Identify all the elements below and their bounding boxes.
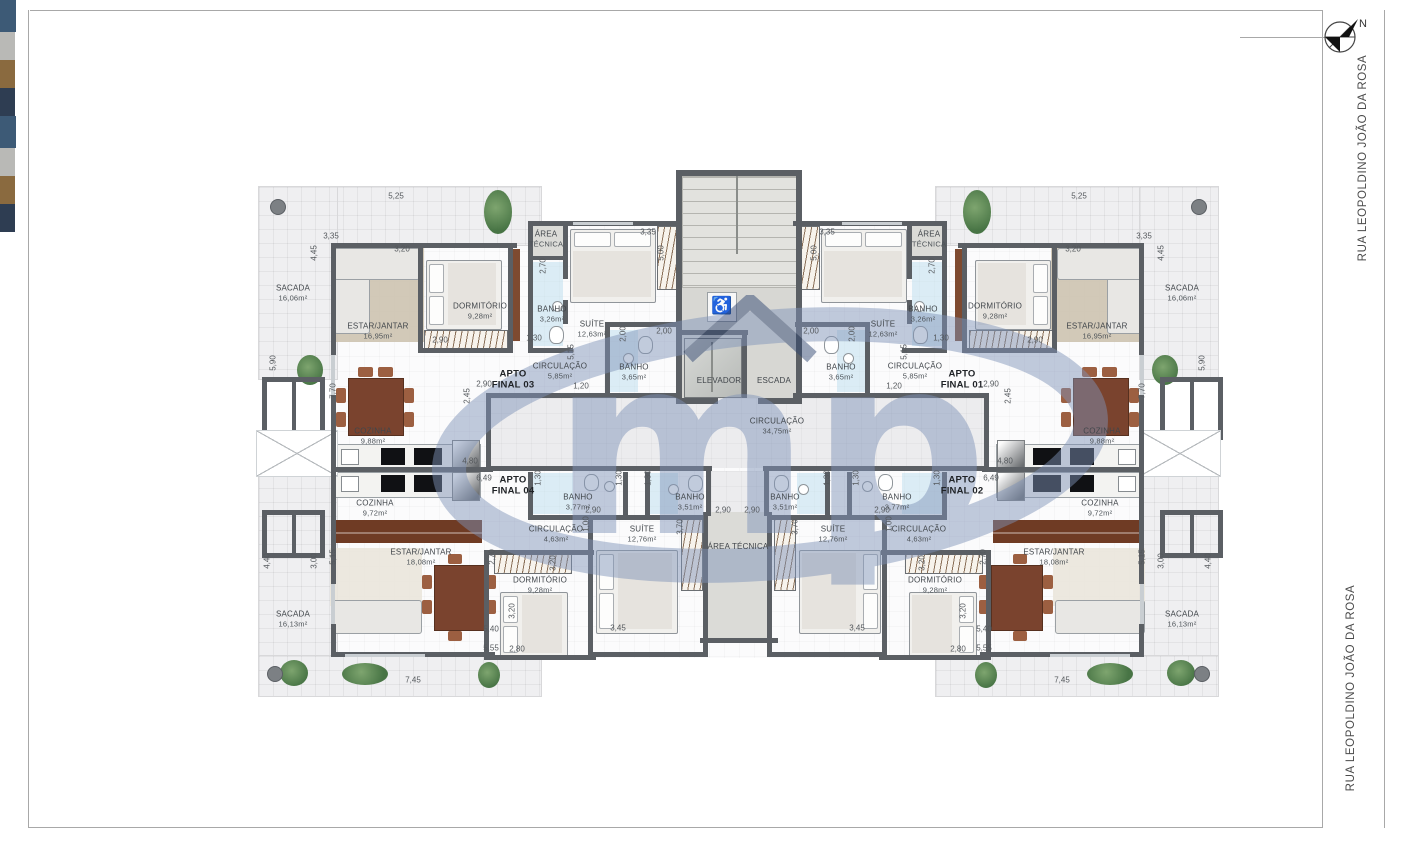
- dimension-label: 5,25: [388, 192, 404, 201]
- floor-plan-labels: SACADA16,06m²SACADA16,06m²ESTAR/JANTAR16…: [0, 0, 1408, 844]
- dimension-label: 6,49: [476, 474, 492, 483]
- core-label-name: CIRCULAÇÃO: [750, 417, 804, 427]
- dimension-label: 1,30: [933, 334, 949, 343]
- room-label-area: 5,85m²: [888, 371, 942, 380]
- room-label: ESTAR/JANTAR18,08m²: [390, 548, 451, 567]
- dimension-label: 3,20: [508, 603, 517, 619]
- room-label-area: 4,63m²: [892, 534, 946, 543]
- dimension-label: 5,55: [483, 644, 499, 653]
- dimension-label: 1,20: [573, 382, 589, 391]
- dimension-label: 3,70: [791, 519, 800, 535]
- dimension-label: 2,90: [715, 506, 731, 515]
- dimension-label: 4,40: [1204, 553, 1213, 569]
- room-label-name: BANHO: [563, 493, 592, 503]
- dimension-label: 1,30: [526, 334, 542, 343]
- apartment-label: APTOFINAL 04: [492, 475, 535, 498]
- dimension-label: 2,90: [744, 506, 760, 515]
- room-label-area: 16,13m²: [1165, 619, 1199, 628]
- room-label: CIRCULAÇÃO5,85m²: [888, 362, 942, 381]
- core-label: CIRCULAÇÃO34,75m²: [750, 417, 804, 436]
- apartment-label-area: FINAL 03: [492, 380, 535, 391]
- room-label-name: ÁREA: [529, 230, 563, 240]
- room-label: SACADA16,13m²: [276, 610, 310, 629]
- room-label-name: COZINHA: [1081, 499, 1118, 509]
- dimension-label: 3,35: [819, 228, 835, 237]
- dimension-label: 1,30: [933, 470, 942, 486]
- dimension-label: 2,80: [509, 645, 525, 654]
- room-label-name: COZINHA: [1083, 427, 1120, 437]
- room-label-area: 18,08m²: [1023, 557, 1084, 566]
- dimension-label: 2,00: [803, 327, 819, 336]
- dimension-label: 3,35: [1136, 232, 1152, 241]
- room-label-area: 16,06m²: [1165, 293, 1199, 302]
- room-label-name: CIRCULAÇÃO: [533, 362, 587, 372]
- apartment-label-name: APTO: [941, 369, 984, 380]
- room-label: CIRCULAÇÃO5,85m²: [533, 362, 587, 381]
- dimension-label: 2,70: [928, 258, 937, 274]
- room-label: DORMITÓRIO9,28m²: [453, 302, 507, 321]
- room-label-name: DORMITÓRIO: [908, 576, 962, 586]
- dimension-label: 1,30: [852, 470, 861, 486]
- room-label: ESTAR/JANTAR16,95m²: [347, 322, 408, 341]
- dimension-label: 1,00: [885, 516, 894, 532]
- room-label-area: 3,51m²: [675, 502, 704, 511]
- dimension-label: 4,45: [310, 245, 319, 261]
- dimension-label: 3,20: [549, 555, 558, 571]
- dimension-label: 5,15: [567, 344, 576, 360]
- core-label: ESCADA: [757, 376, 791, 386]
- dimension-label: 5,40: [976, 625, 992, 634]
- room-label: SACADA16,06m²: [276, 284, 310, 303]
- room-label-name: ESTAR/JANTAR: [390, 548, 451, 558]
- dimension-label: 2,45: [1004, 388, 1013, 404]
- dimension-label: 5,25: [1071, 192, 1087, 201]
- dimension-label: 5,00: [657, 245, 666, 261]
- dimension-label: 2,00: [619, 326, 628, 342]
- room-label-area: 9,88m²: [1083, 436, 1120, 445]
- room-label: ÁREATÉCNICA: [912, 230, 946, 249]
- room-label-name: ESTAR/JANTAR: [1066, 322, 1127, 332]
- room-label-name: SUÍTE: [628, 525, 657, 535]
- dimension-label: 2,70: [979, 549, 988, 565]
- room-label-name: DORMITÓRIO: [513, 576, 567, 586]
- room-label-area: 16,95m²: [347, 331, 408, 340]
- room-label-name: ESTAR/JANTAR: [347, 322, 408, 332]
- apartment-label: APTOFINAL 01: [941, 369, 984, 392]
- dimension-label: 5,00: [810, 245, 819, 261]
- dimension-label: 2,90: [983, 380, 999, 389]
- room-label-area: 3,65m²: [619, 372, 648, 381]
- dimension-label: 1,20: [886, 382, 902, 391]
- dimension-label: 3,45: [849, 624, 865, 633]
- dimension-label: 5,15: [329, 549, 338, 565]
- room-label-area: 9,28m²: [908, 585, 962, 594]
- room-label-name: ÁREA: [912, 230, 946, 240]
- room-label: SACADA16,13m²: [1165, 610, 1199, 629]
- room-label: COZINHA9,88m²: [1083, 427, 1120, 446]
- room-label-area: 9,72m²: [356, 508, 393, 517]
- dimension-label: 3,20: [918, 555, 927, 571]
- room-label: BANHO3,51m²: [770, 493, 799, 512]
- room-label-name: DORMITÓRIO: [968, 302, 1022, 312]
- room-label-name: SUÍTE: [869, 320, 898, 330]
- dimension-label: 5,90: [269, 355, 278, 371]
- room-label-area: 12,76m²: [819, 534, 848, 543]
- room-label-area: 9,28m²: [513, 585, 567, 594]
- room-label-area: 9,72m²: [1081, 508, 1118, 517]
- dimension-label: 3,20: [394, 245, 410, 254]
- apartment-label: APTOFINAL 02: [941, 475, 984, 498]
- dimension-label: 5,15: [1138, 549, 1147, 565]
- room-label-area: 4,63m²: [529, 534, 583, 543]
- dimension-label: 3,20: [959, 603, 968, 619]
- room-label-name: SACADA: [276, 284, 310, 294]
- room-label: SUÍTE12,63m²: [869, 320, 898, 339]
- dimension-label: 3,70: [676, 519, 685, 535]
- room-label-name: DORMITÓRIO: [453, 302, 507, 312]
- dimension-label: 5,40: [483, 625, 499, 634]
- dimension-label: 2,90: [432, 336, 448, 345]
- room-label: CIRCULAÇÃO4,63m²: [529, 525, 583, 544]
- dimension-label: 5,90: [1198, 355, 1207, 371]
- room-label: ESTAR/JANTAR16,95m²: [1066, 322, 1127, 341]
- dimension-label: 2,90: [476, 380, 492, 389]
- room-label-area: 12,63m²: [869, 329, 898, 338]
- apartment-label-name: APTO: [492, 475, 535, 486]
- dimension-label: 2,45: [463, 388, 472, 404]
- apartment-label-area: FINAL 04: [492, 486, 535, 497]
- dimension-label: 3,35: [323, 232, 339, 241]
- dimension-label: 3,35: [640, 228, 656, 237]
- core-label: ELEVADOR: [697, 376, 742, 386]
- dimension-label: 1,00: [582, 516, 591, 532]
- room-label-area: 9,28m²: [968, 311, 1022, 320]
- room-label: COZINHA9,72m²: [1081, 499, 1118, 518]
- room-label-name: SACADA: [1165, 610, 1199, 620]
- room-label: BANHO3,65m²: [619, 363, 648, 382]
- room-label-name: SUÍTE: [578, 320, 607, 330]
- dimension-label: 1,30: [823, 470, 832, 486]
- room-label: SACADA16,06m²: [1165, 284, 1199, 303]
- dimension-label: 2,00: [656, 327, 672, 336]
- dimension-label: 1,30: [534, 470, 543, 486]
- dimension-label: 7,70: [329, 383, 338, 399]
- room-label-area: 16,06m²: [276, 293, 310, 302]
- dimension-label: 7,45: [405, 676, 421, 685]
- dimension-label: 3,00: [310, 553, 319, 569]
- room-label-area: 9,28m²: [453, 311, 507, 320]
- room-label: SUÍTE12,63m²: [578, 320, 607, 339]
- apartment-label-area: FINAL 02: [941, 486, 984, 497]
- room-label-area: 16,13m²: [276, 619, 310, 628]
- street-label: RUA LEOPOLDINO JOÃO DA ROSA: [1345, 585, 1357, 792]
- dimension-label: 2,80: [950, 645, 966, 654]
- room-label-name: SACADA: [1165, 284, 1199, 294]
- room-label-name: CIRCULAÇÃO: [892, 525, 946, 535]
- dimension-label: 3,00: [1157, 553, 1166, 569]
- room-label: DORMITÓRIO9,28m²: [968, 302, 1022, 321]
- room-label-name: BANHO: [908, 305, 937, 315]
- dimension-label: 2,70: [488, 549, 497, 565]
- dimension-label: 6,49: [983, 474, 999, 483]
- room-label-area: 12,76m²: [628, 534, 657, 543]
- dimension-label: 4,80: [462, 457, 478, 466]
- room-label-name: CIRCULAÇÃO: [529, 525, 583, 535]
- room-label-name: BANHO: [770, 493, 799, 503]
- room-label-name: BANHO: [537, 305, 566, 315]
- room-label-name: CIRCULAÇÃO: [888, 362, 942, 372]
- core-label-name: ESCADA: [757, 376, 791, 386]
- dimension-label: 2,90: [874, 506, 890, 515]
- room-label-name: SACADA: [276, 610, 310, 620]
- room-label-area: 3,65m²: [826, 372, 855, 381]
- core-label: ÁREA TÉCNICA: [708, 542, 769, 552]
- room-label-name: SUÍTE: [819, 525, 848, 535]
- room-label-area: 3,26m²: [537, 314, 566, 323]
- dimension-label: 4,40: [263, 553, 272, 569]
- room-label-name: BANHO: [675, 493, 704, 503]
- dimension-label: 1,30: [615, 470, 624, 486]
- room-label-area: 3,51m²: [770, 502, 799, 511]
- room-label-name: ESTAR/JANTAR: [1023, 548, 1084, 558]
- dimension-label: 5,55: [976, 644, 992, 653]
- dimension-label: 4,45: [1157, 245, 1166, 261]
- room-label-name: COZINHA: [356, 499, 393, 509]
- core-label-area: 34,75m²: [750, 426, 804, 435]
- room-label-name: BANHO: [882, 493, 911, 503]
- room-label: SUÍTE12,76m²: [819, 525, 848, 544]
- core-label-name: ÁREA TÉCNICA: [708, 542, 769, 552]
- room-label-area: 16,95m²: [1066, 331, 1127, 340]
- room-label: DORMITÓRIO9,28m²: [908, 576, 962, 595]
- dimension-label: 1,30: [644, 470, 653, 486]
- apartment-label-area: FINAL 01: [941, 380, 984, 391]
- room-label: BANHO3,26m²: [908, 305, 937, 324]
- room-label-name: COZINHA: [354, 427, 391, 437]
- apartment-label: APTOFINAL 03: [492, 369, 535, 392]
- dimension-label: 7,70: [1138, 383, 1147, 399]
- room-label: ESTAR/JANTAR18,08m²: [1023, 548, 1084, 567]
- room-label-area: 5,85m²: [533, 371, 587, 380]
- room-label-area: 9,88m²: [354, 436, 391, 445]
- dimension-label: 3,20: [1065, 245, 1081, 254]
- room-label-area: TÉCNICA: [912, 239, 946, 248]
- dimension-label: 2,70: [539, 258, 548, 274]
- room-label-area: TÉCNICA: [529, 239, 563, 248]
- dimension-label: 2,90: [585, 506, 601, 515]
- dimension-label: 5,15: [900, 344, 909, 360]
- dimension-label: 7,45: [1054, 676, 1070, 685]
- room-label: SUÍTE12,76m²: [628, 525, 657, 544]
- room-label: CIRCULAÇÃO4,63m²: [892, 525, 946, 544]
- room-label: BANHO3,51m²: [675, 493, 704, 512]
- room-label: DORMITÓRIO9,28m²: [513, 576, 567, 595]
- room-label: ÁREATÉCNICA: [529, 230, 563, 249]
- street-label: RUA LEOPOLDINO JOÃO DA ROSA: [1357, 55, 1369, 262]
- apartment-label-name: APTO: [492, 369, 535, 380]
- core-label-name: ELEVADOR: [697, 376, 742, 386]
- dimension-label: 2,00: [848, 326, 857, 342]
- room-label-area: 18,08m²: [390, 557, 451, 566]
- dimension-label: 4,80: [997, 457, 1013, 466]
- floor-plan-page: ♿ mp N SACADA16,06m²SACADA16,06m²ESTAR/J…: [0, 0, 1408, 844]
- room-label-name: BANHO: [619, 363, 648, 373]
- room-label-area: 3,26m²: [908, 314, 937, 323]
- room-label-name: BANHO: [826, 363, 855, 373]
- room-label: COZINHA9,88m²: [354, 427, 391, 446]
- dimension-label: 3,45: [610, 624, 626, 633]
- room-label: BANHO3,26m²: [537, 305, 566, 324]
- room-label: COZINHA9,72m²: [356, 499, 393, 518]
- room-label-area: 12,63m²: [578, 329, 607, 338]
- dimension-label: 2,90: [1027, 336, 1043, 345]
- room-label: BANHO3,65m²: [826, 363, 855, 382]
- apartment-label-name: APTO: [941, 475, 984, 486]
